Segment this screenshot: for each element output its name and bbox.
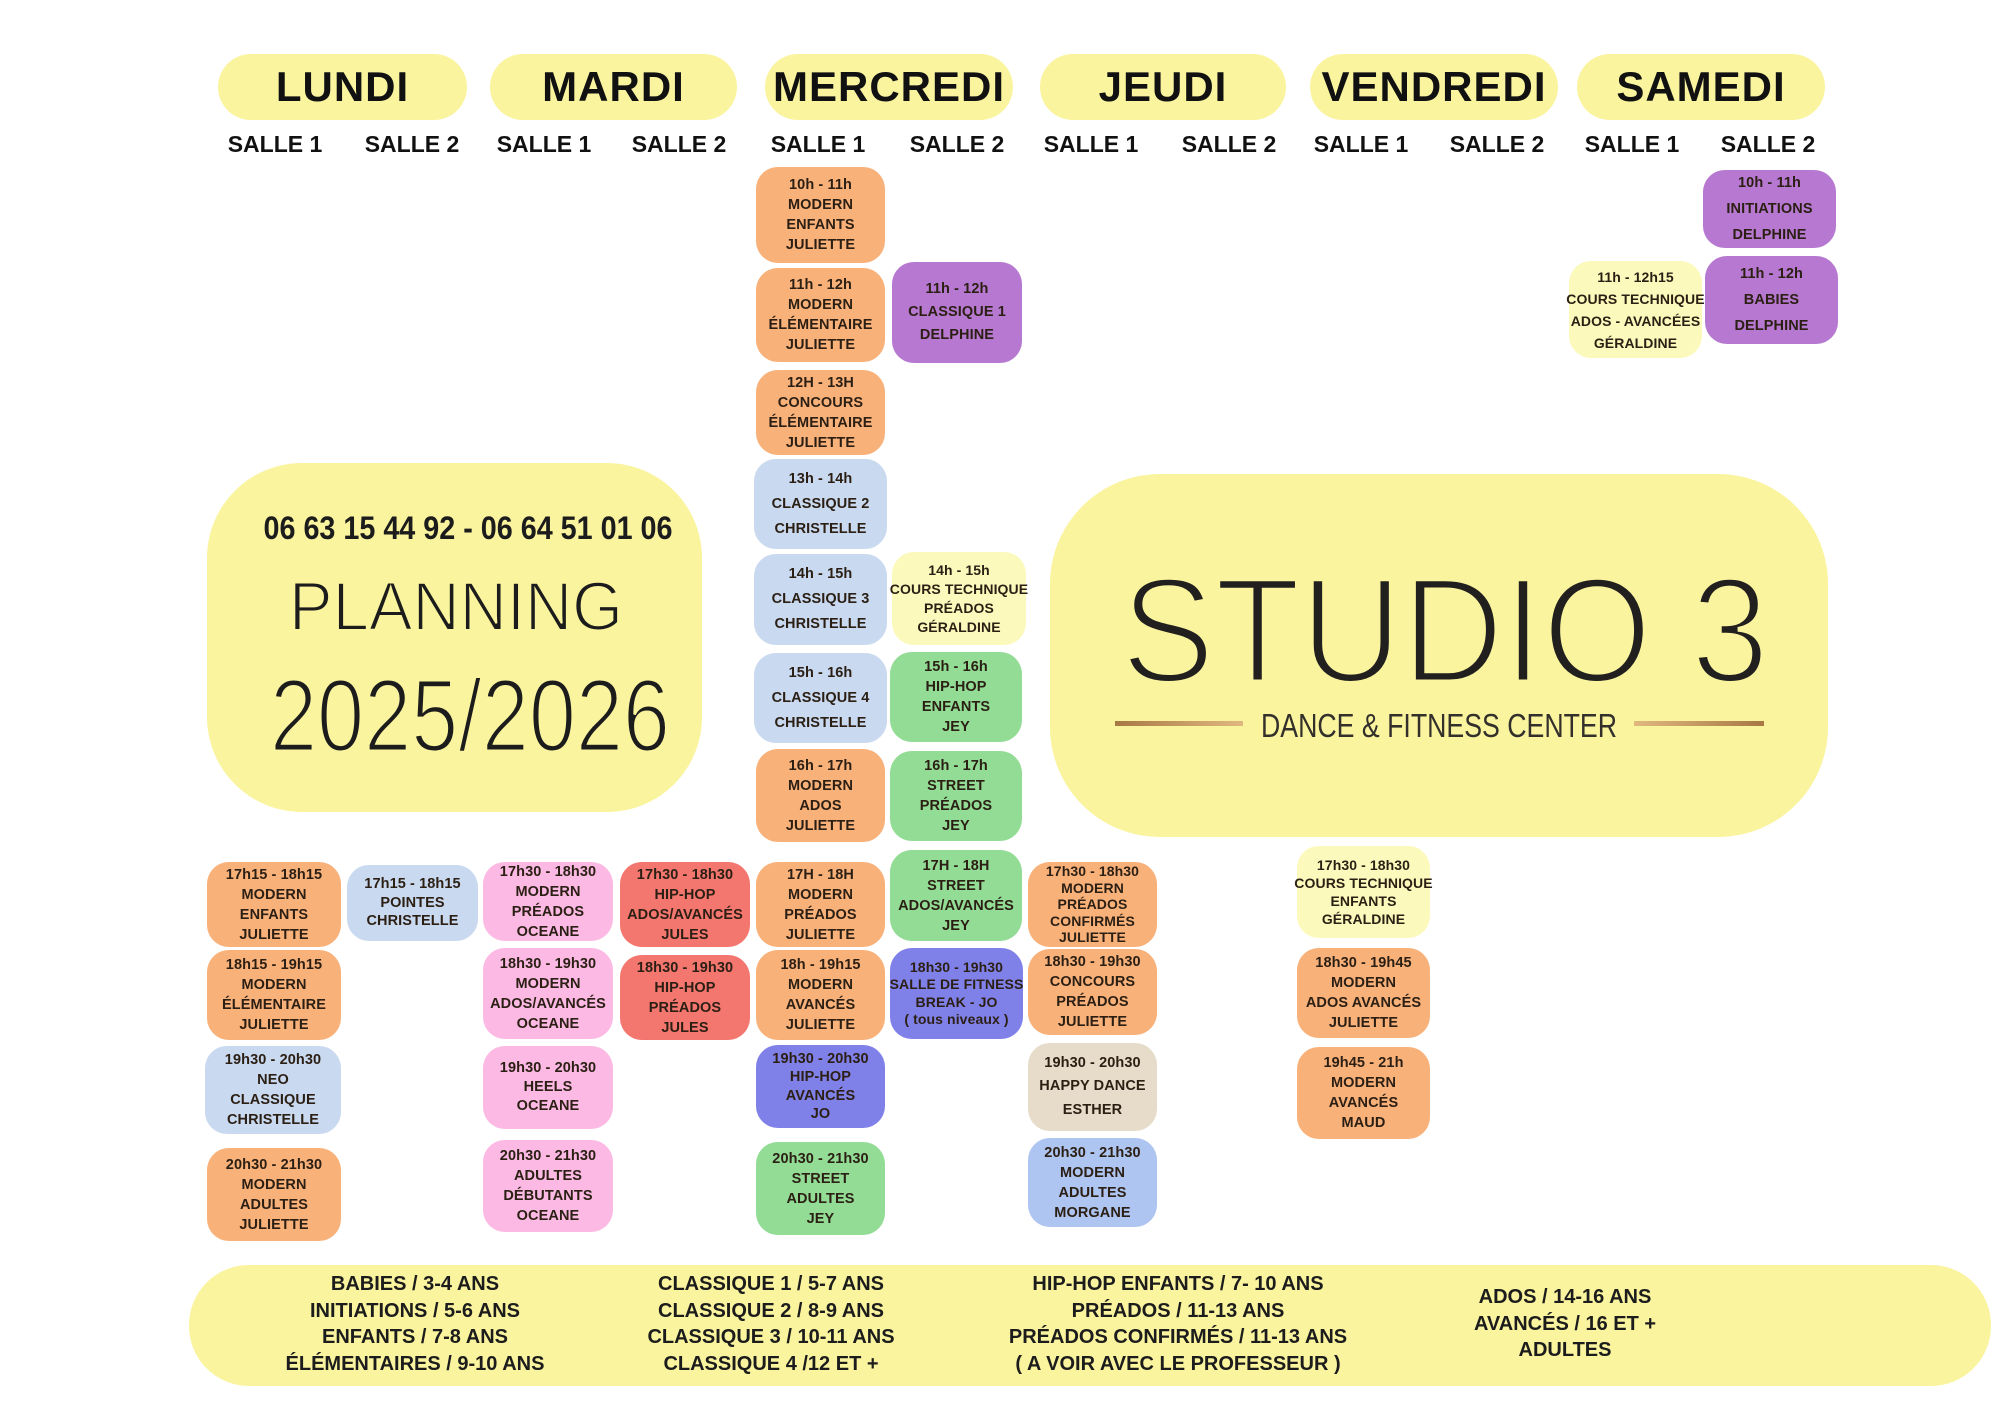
svg-text:STUDIO 3: STUDIO 3 — [1121, 546, 1769, 714]
svg-text:2025/2026: 2025/2026 — [270, 658, 670, 773]
svg-text:PLANNING: PLANNING — [289, 568, 623, 645]
svg-text:06 63 15 44 92 - 06 64 51 01 0: 06 63 15 44 92 - 06 64 51 01 06 — [264, 510, 673, 546]
svg-text:DANCE & FITNESS CENTER: DANCE & FITNESS CENTER — [1261, 707, 1617, 744]
